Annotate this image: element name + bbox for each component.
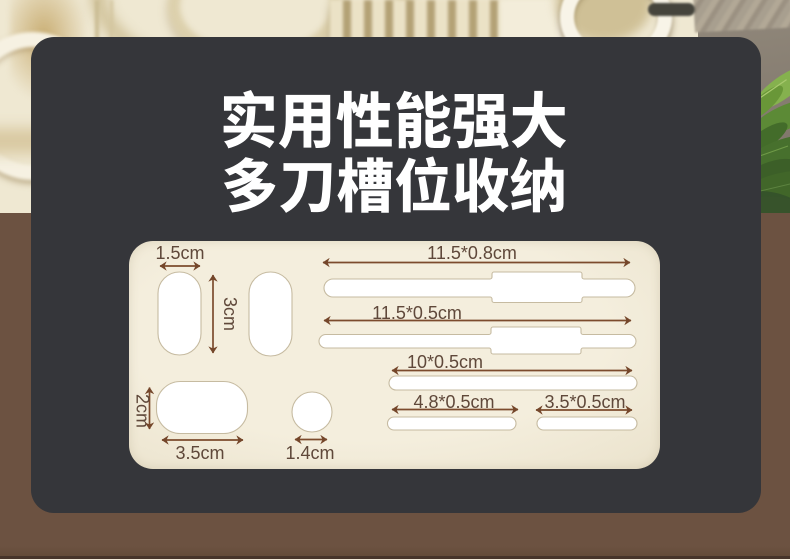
svg-text:10*0.5cm: 10*0.5cm	[407, 352, 483, 372]
svg-text:4.8*0.5cm: 4.8*0.5cm	[413, 392, 494, 412]
svg-text:3.5*0.5cm: 3.5*0.5cm	[544, 392, 625, 412]
svg-text:3.5cm: 3.5cm	[175, 443, 224, 463]
svg-text:11.5*0.8cm: 11.5*0.8cm	[427, 243, 517, 263]
svg-text:2cm: 2cm	[133, 394, 153, 428]
svg-text:3cm: 3cm	[220, 297, 240, 331]
svg-text:1.4cm: 1.4cm	[285, 443, 334, 463]
svg-text:11.5*0.5cm: 11.5*0.5cm	[372, 303, 462, 323]
svg-text:1.5cm: 1.5cm	[155, 243, 204, 263]
